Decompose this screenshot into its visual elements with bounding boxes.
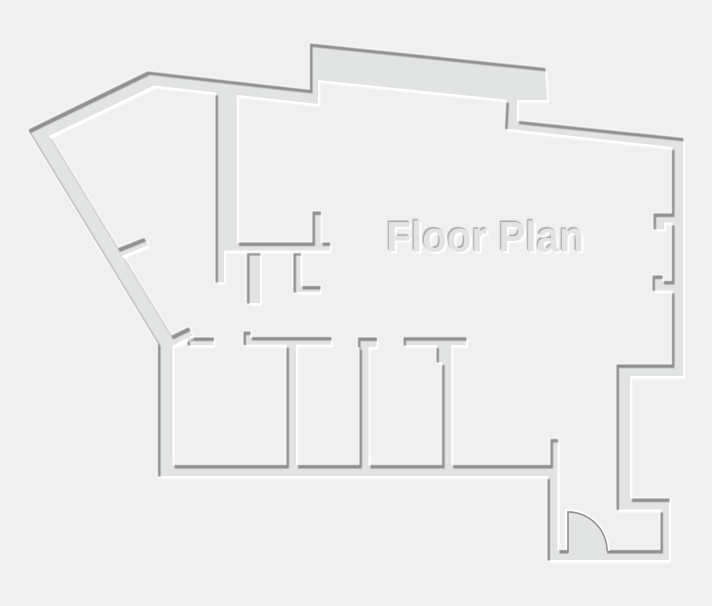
svg-text:Floor Plan: Floor Plan bbox=[386, 214, 584, 262]
